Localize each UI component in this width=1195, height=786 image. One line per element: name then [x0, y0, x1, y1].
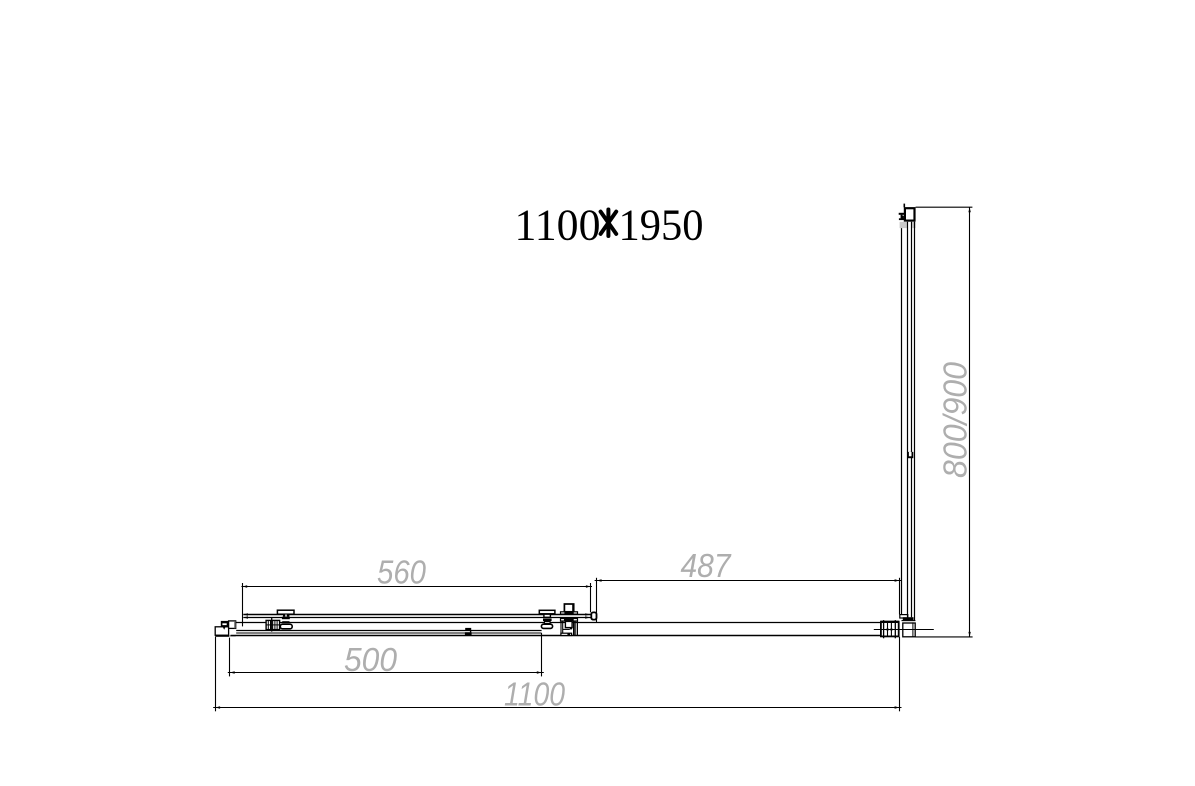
svg-text:1950: 1950 — [619, 200, 704, 250]
svg-text:1100: 1100 — [504, 677, 565, 714]
svg-text:487: 487 — [681, 548, 732, 585]
svg-text:800/900: 800/900 — [938, 362, 975, 478]
svg-text:500: 500 — [344, 642, 397, 679]
svg-text:1100: 1100 — [515, 200, 601, 250]
svg-text:560: 560 — [377, 555, 426, 592]
